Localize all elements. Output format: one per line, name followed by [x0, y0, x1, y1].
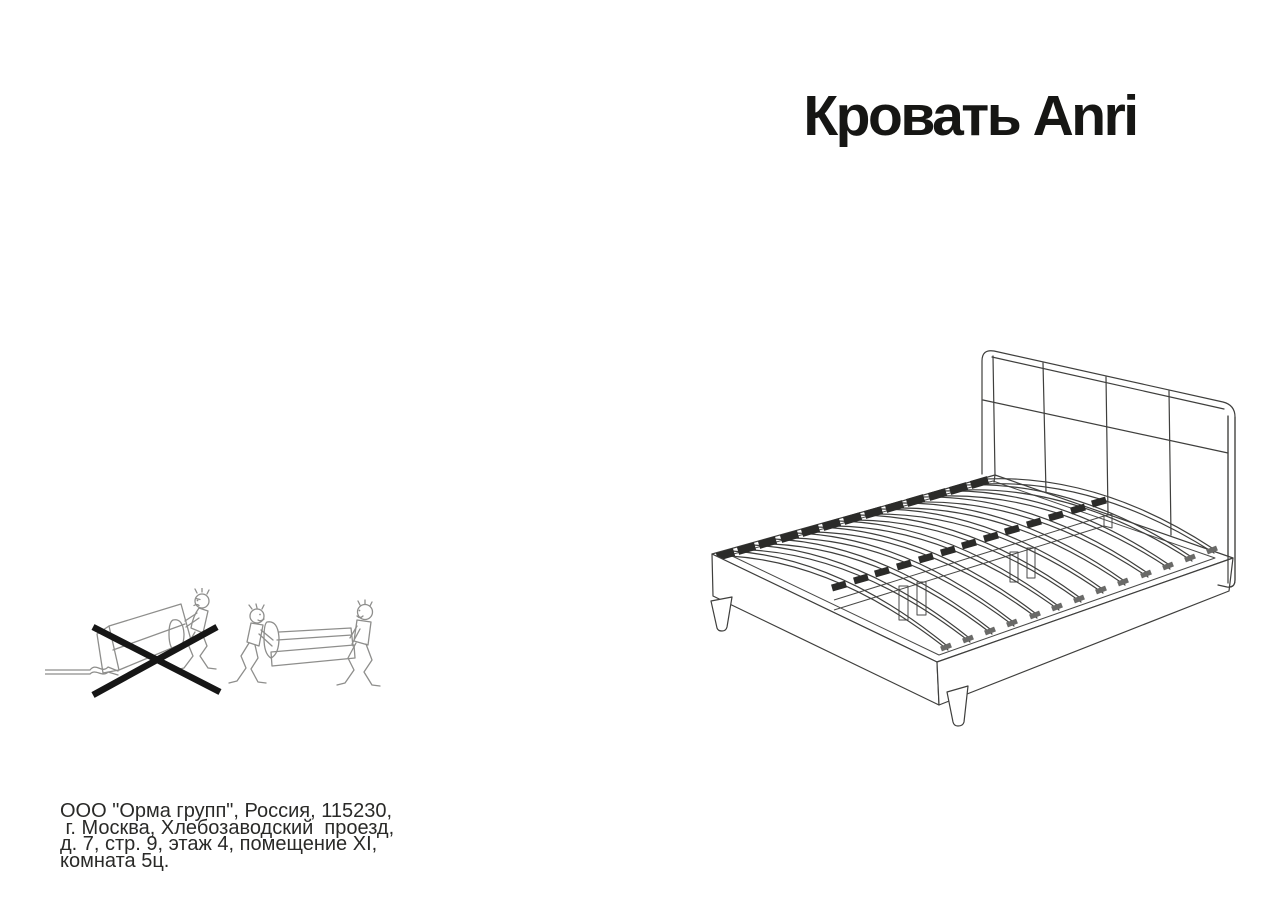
carrying-instructions-svg: [45, 588, 405, 708]
page-title: Кровать Anri: [700, 88, 1240, 145]
no-symbol-cross: [93, 627, 220, 695]
bed-technical-drawing: [680, 330, 1260, 750]
manufacturer-address: ООО "Орма групп", Россия, 115230, г. Мос…: [60, 803, 394, 869]
bed-drawing-svg: [680, 330, 1260, 750]
carrying-instructions: [45, 588, 405, 708]
instruction-page: Кровать Anri: [0, 0, 1280, 900]
bed-frame-top: [712, 475, 1233, 662]
person-carrying-right: [337, 600, 380, 686]
person-carrying-left: [229, 604, 273, 683]
two-person-carry-illustration: [229, 600, 380, 686]
do-not-drag-illustration: [45, 588, 220, 695]
address-line: комната 5ц.: [60, 853, 394, 870]
